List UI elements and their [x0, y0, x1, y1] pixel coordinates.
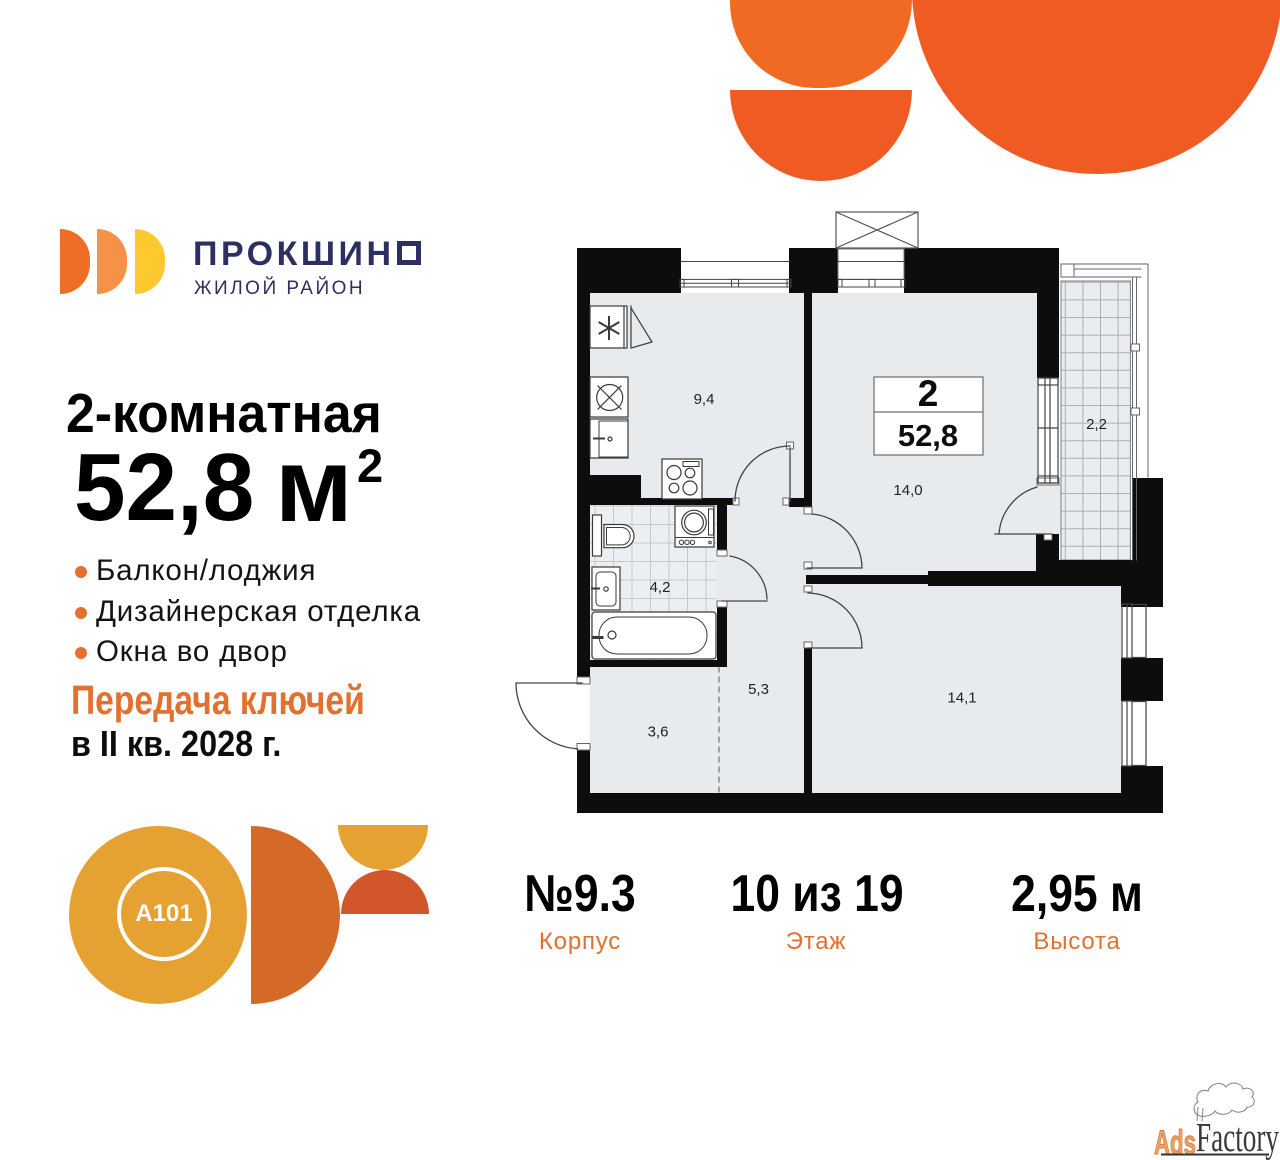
svg-text:2: 2 — [918, 373, 939, 414]
svg-text:4,2: 4,2 — [650, 579, 671, 596]
svg-text:5,3: 5,3 — [748, 681, 769, 698]
svg-text:14,0: 14,0 — [893, 482, 922, 499]
svg-text:52,8: 52,8 — [898, 418, 958, 453]
svg-text:9,4: 9,4 — [694, 391, 715, 408]
svg-text:14,1: 14,1 — [947, 690, 976, 707]
svg-text:Factory: Factory — [1196, 1114, 1279, 1160]
svg-text:2,2: 2,2 — [1086, 416, 1107, 433]
svg-text:3,6: 3,6 — [648, 724, 669, 741]
